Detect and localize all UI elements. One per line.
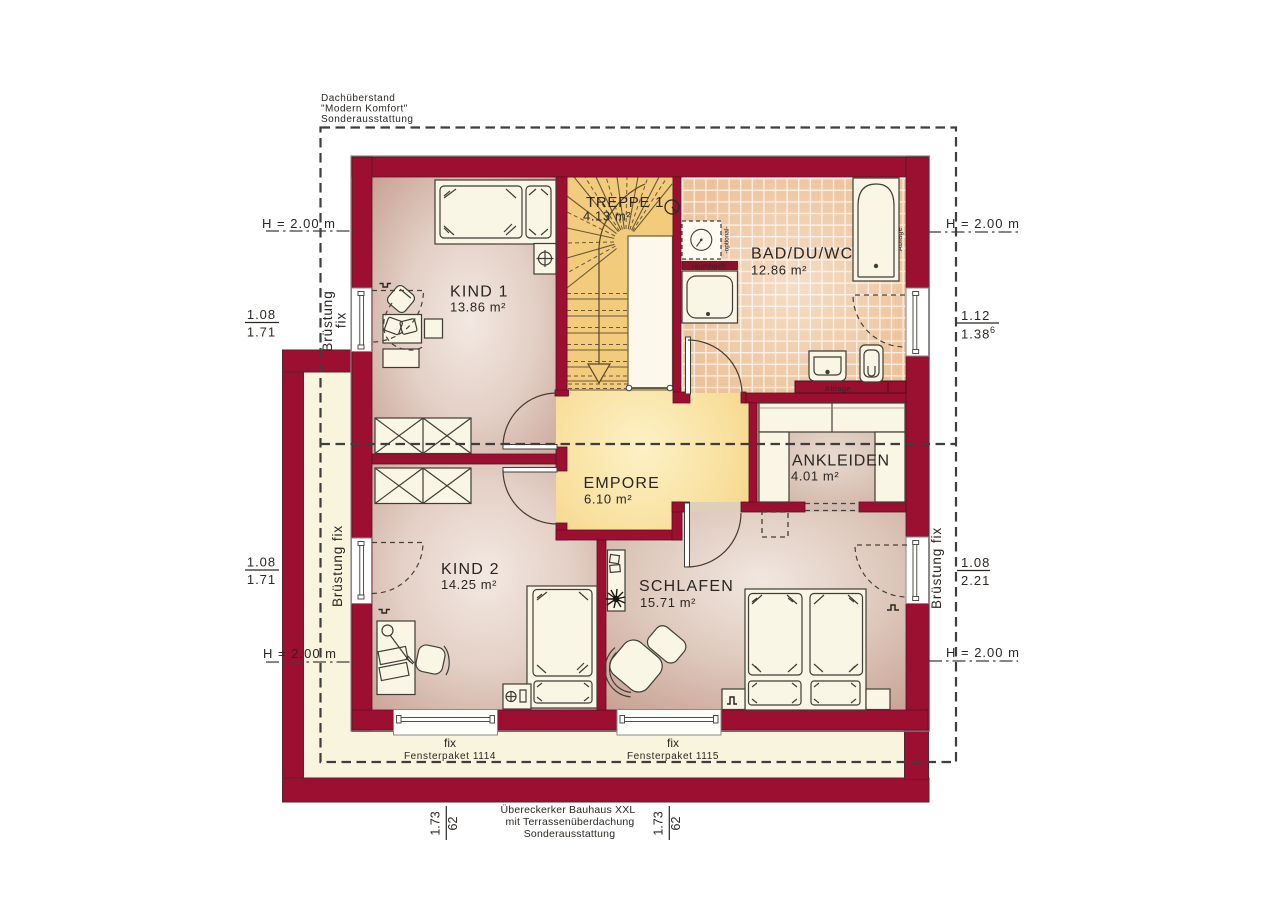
svg-text:1.38: 1.38 [961,327,990,342]
svg-text:1.71: 1.71 [247,572,276,587]
svg-text:14.25 m²: 14.25 m² [441,577,497,592]
svg-text:fix: fix [667,736,679,750]
svg-text:12.86 m²: 12.86 m² [751,263,807,278]
svg-text:4.01 m²: 4.01 m² [791,469,839,484]
svg-text:1.08: 1.08 [247,307,276,322]
svg-text:Brüstung fix: Brüstung fix [929,527,944,609]
svg-text:"Modern Komfort": "Modern Komfort" [321,104,408,115]
svg-text:Übereckerker Bauhaus XXL: Übereckerker Bauhaus XXL [501,804,636,816]
svg-text:raumhoch: raumhoch [692,264,726,271]
svg-text:6.10 m²: 6.10 m² [584,492,632,507]
svg-text:Fensterpaket 1115: Fensterpaket 1115 [627,751,719,762]
svg-text:KIND 2: KIND 2 [441,561,500,578]
svg-text:13.86 m²: 13.86 m² [450,300,506,315]
svg-text:4.13 m²: 4.13 m² [583,209,631,224]
svg-text:Sonderausstattung: Sonderausstattung [321,114,413,125]
svg-text:1.73: 1.73 [429,811,443,835]
svg-text:EMPORE: EMPORE [584,475,661,492]
svg-text:fix: fix [334,312,349,328]
svg-text:Sonderausstattung: Sonderausstattung [524,828,616,840]
svg-text:BAD/DU/WC: BAD/DU/WC [751,246,853,263]
svg-text:1.73: 1.73 [652,811,666,835]
svg-text:6: 6 [990,325,996,335]
svg-text:62: 62 [446,817,460,831]
svg-text:1.08: 1.08 [961,555,990,570]
svg-text:SCHLAFEN: SCHLAFEN [639,578,734,595]
svg-text:ANKLEIDEN: ANKLEIDEN [792,453,890,470]
svg-text:H = 2.00 m: H = 2.00 m [263,646,337,661]
svg-text:H = 2.00 m: H = 2.00 m [946,645,1020,660]
svg-text:mit Terrassenüberdachung: mit Terrassenüberdachung [506,816,635,828]
svg-text:62: 62 [669,817,683,831]
svg-text:1.12: 1.12 [961,308,990,323]
svg-text:Brüstung fix: Brüstung fix [330,525,345,607]
svg-text:Ablage: Ablage [825,384,851,393]
svg-text:15.71 m²: 15.71 m² [640,595,696,610]
svg-text:2.21: 2.21 [961,573,990,588]
svg-text:H = 2.00 m: H = 2.00 m [946,216,1020,231]
svg-text:1.08: 1.08 [247,555,276,570]
svg-text:1.71: 1.71 [247,325,276,340]
svg-text:-optional-: -optional- [724,226,731,253]
svg-text:fix: fix [444,736,456,750]
svg-text:Dachüberstand: Dachüberstand [321,93,395,104]
svg-text:KIND 1: KIND 1 [450,284,509,301]
svg-text:H = 2.00 m: H = 2.00 m [262,216,336,231]
svg-text:Fensterpaket 1114: Fensterpaket 1114 [404,751,496,762]
